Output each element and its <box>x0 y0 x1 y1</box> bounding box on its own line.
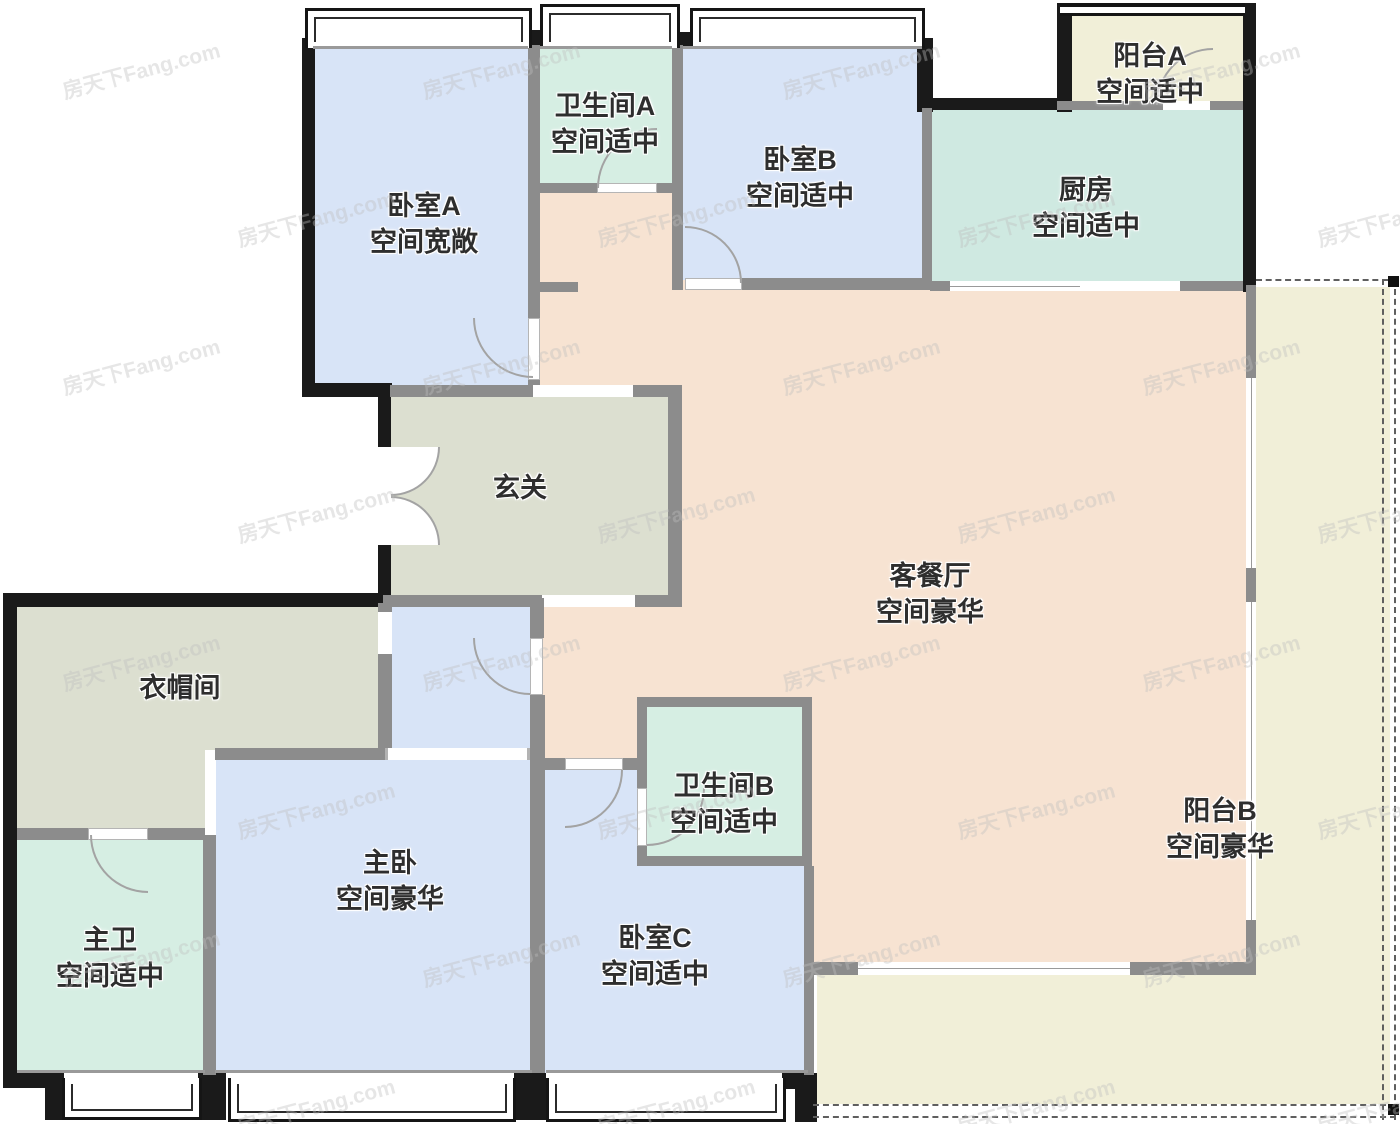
wall-segment <box>1057 3 1072 112</box>
room-label-kitchen: 厨房 空间适中 <box>1032 172 1140 244</box>
wall-segment <box>3 593 17 1088</box>
room-desc: 空间豪华 <box>336 881 444 917</box>
wall-segment <box>795 1073 817 1122</box>
room-label-bathroom-b: 卫生间B 空间适中 <box>670 768 778 840</box>
bay-window <box>690 8 925 48</box>
wall-segment <box>3 593 385 607</box>
wall-segment <box>537 758 565 770</box>
cloakroom-opening <box>378 612 392 654</box>
wall-segment <box>378 395 391 447</box>
wall-segment <box>922 108 932 290</box>
wall-segment <box>813 962 858 975</box>
room-label-balcony-a: 阳台A 空间适中 <box>1096 38 1204 110</box>
room-name: 卧室A <box>370 188 478 224</box>
wall-segment <box>148 828 205 840</box>
room-name: 衣帽间 <box>140 670 221 706</box>
wall-segment <box>657 183 672 193</box>
wall-segment <box>528 45 540 318</box>
room-label-cloakroom: 衣帽间 <box>140 670 221 706</box>
door-leaf <box>530 638 543 695</box>
wall-segment <box>672 45 683 290</box>
room-label-living-dining: 客餐厅 空间豪华 <box>876 558 984 630</box>
bay-window <box>305 8 532 48</box>
room-label-master-bedroom: 主卧 空间豪华 <box>336 845 444 917</box>
room-desc: 空间适中 <box>1032 208 1140 244</box>
living-window <box>1246 602 1256 920</box>
wall-segment <box>1180 281 1243 291</box>
bay-window <box>546 1078 786 1122</box>
room-label-balcony-b: 阳台B 空间豪华 <box>1166 793 1274 865</box>
room-desc: 空间适中 <box>56 958 164 994</box>
foyer-bottom-opening <box>542 595 635 607</box>
door-leaf <box>637 788 647 846</box>
room-name: 阳台A <box>1096 38 1204 74</box>
wall-segment <box>920 98 1057 110</box>
room-name: 卧室C <box>601 920 709 956</box>
room-desc: 空间适中 <box>1096 74 1204 110</box>
wall-segment <box>1246 568 1256 602</box>
wall-segment <box>378 654 392 755</box>
wall-segment <box>742 278 922 290</box>
bay-window <box>228 1078 516 1122</box>
wall-segment <box>668 385 682 607</box>
balcony-b-dashed-top <box>1256 279 1388 281</box>
room-desc: 空间适中 <box>551 124 659 160</box>
room-name: 玄关 <box>493 470 547 506</box>
room-name: 厨房 <box>1032 172 1140 208</box>
room-name: 主卧 <box>336 845 444 881</box>
wall-segment <box>514 1073 546 1120</box>
room-desc: 空间宽敞 <box>370 224 478 260</box>
room-name: 卧室B <box>746 142 854 178</box>
window-sill <box>17 1070 205 1073</box>
wall-segment <box>530 695 545 1073</box>
room-balcony-b-side[interactable] <box>1256 287 1390 973</box>
window-sill <box>313 46 528 49</box>
wall-segment <box>390 385 533 397</box>
wall-segment <box>637 697 812 707</box>
kitchen-opening <box>1080 281 1180 291</box>
balcony-a-window <box>1060 3 1245 16</box>
wall-segment <box>530 598 544 638</box>
master-bedroom-opening <box>385 748 530 760</box>
room-label-bedroom-a: 卧室A 空间宽敞 <box>370 188 478 260</box>
room-desc: 空间适中 <box>746 178 854 214</box>
watermark-text: 房天下Fang.com <box>234 479 398 550</box>
room-name: 阳台B <box>1166 793 1274 829</box>
wall-segment <box>637 856 812 866</box>
wall-segment <box>203 835 216 1075</box>
room-label-bathroom-a: 卫生间A 空间适中 <box>551 88 659 160</box>
watermark-text: 房天下Fang.com <box>59 331 223 402</box>
watermark-text: 房天下Fang.com <box>1314 183 1400 254</box>
room-desc: 空间豪华 <box>876 594 984 630</box>
wall-segment <box>930 281 950 291</box>
balcony-b-dashed-right <box>1394 279 1396 1120</box>
room-label-foyer: 玄关 <box>493 470 547 506</box>
door-leaf <box>565 758 623 770</box>
room-balcony-b-bottom[interactable] <box>817 973 1390 1104</box>
balcony-b-dashed-bottom <box>813 1104 1396 1106</box>
room-desc: 空间适中 <box>601 956 709 992</box>
wall-segment <box>1130 962 1252 975</box>
room-label-master-bath: 主卫 空间适中 <box>56 922 164 994</box>
balcony-b-dashed-bottom <box>813 1116 1396 1118</box>
room-name: 卫生间A <box>551 88 659 124</box>
room-desc: 空间适中 <box>670 804 778 840</box>
boundary-corner-marker <box>1388 1104 1399 1115</box>
room-name: 客餐厅 <box>876 558 984 594</box>
wall-segment <box>802 697 812 866</box>
room-name: 卫生间B <box>670 768 778 804</box>
watermark-text: 房天下Fang.com <box>59 35 223 106</box>
wall-segment <box>17 828 88 840</box>
wall-segment <box>302 38 315 390</box>
bay-window <box>62 1078 202 1120</box>
wall-segment <box>538 282 578 292</box>
wall-segment <box>383 595 542 607</box>
living-window <box>1246 378 1256 568</box>
wall-segment <box>378 603 392 612</box>
window-sill <box>546 1070 808 1073</box>
wall-segment <box>637 846 647 866</box>
wall-segment <box>1210 101 1243 110</box>
wall-segment <box>215 748 385 760</box>
room-cloakroom-lower[interactable] <box>17 750 205 830</box>
wall-segment <box>1243 3 1256 292</box>
window-sill <box>540 46 672 49</box>
window-sill <box>683 46 922 49</box>
wall-segment <box>198 1073 226 1120</box>
kitchen-window <box>950 281 1080 291</box>
room-label-bedroom-c: 卧室C 空间适中 <box>601 920 709 992</box>
floor-plan: 卧室A 空间宽敞 卫生间A 空间适中 卧室B 空间适中 厨房 空间适中 阳台A … <box>0 0 1400 1124</box>
wall-segment <box>1246 285 1256 378</box>
wall-segment <box>540 183 597 193</box>
foyer-top-opening <box>533 385 633 397</box>
wall-segment <box>635 595 682 607</box>
wall-segment <box>637 697 647 788</box>
room-label-bedroom-b: 卧室B 空间适中 <box>746 142 854 214</box>
room-desc: 空间豪华 <box>1166 829 1274 865</box>
room-name: 主卫 <box>56 922 164 958</box>
entry-door-opening <box>378 447 391 545</box>
window-sill <box>215 1070 532 1073</box>
boundary-corner-marker <box>1388 276 1399 287</box>
bay-window <box>540 4 680 48</box>
balcony-b-dashed-right <box>1382 279 1384 1120</box>
living-window <box>858 962 1130 975</box>
